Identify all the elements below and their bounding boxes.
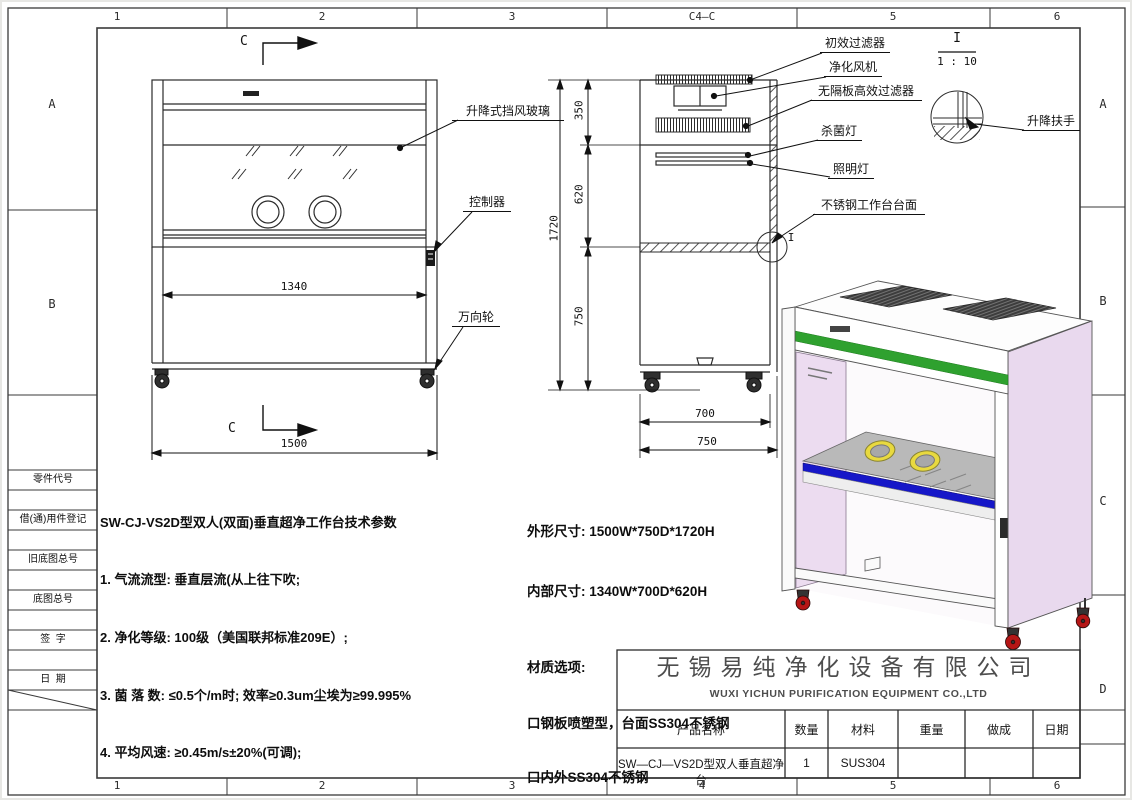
detail-marker-I: I	[784, 232, 798, 245]
record-part-code: 零件代号	[10, 474, 96, 486]
label-lifting-glass: 升降式挡风玻璃	[452, 105, 564, 121]
callout-worktop: 不锈钢工作台台面	[813, 199, 925, 215]
dim-620: 620	[574, 174, 587, 214]
dim-750-vertical: 750	[574, 296, 587, 336]
callout-prefilter: 初效过滤器	[820, 37, 890, 53]
zone-top-2: 2	[282, 11, 362, 24]
zone-top-3: 3	[472, 11, 552, 24]
record-date: 日 期	[10, 674, 96, 686]
dim-1500: 1500	[264, 438, 324, 451]
product-material: SUS304	[828, 756, 898, 770]
record-borrowed: 借(通)用件登记	[10, 514, 96, 526]
row-right-A: A	[1088, 98, 1118, 112]
record-master-no: 底图总号	[10, 594, 96, 606]
brand-logo-front	[243, 91, 259, 96]
product-name: SW—CJ—VS2D型双人垂直超净台	[617, 756, 785, 788]
zone-top-6: 6	[1017, 11, 1097, 24]
product-qty: 1	[785, 756, 828, 770]
row-right-D: D	[1088, 683, 1118, 697]
company-name-cn: 无锡易纯净化设备有限公司	[617, 655, 1080, 681]
col-header-weight: 重量	[898, 721, 965, 738]
brand-logo-3d	[830, 326, 850, 332]
outer-size: 外形尺寸: 1500W*750D*1720H	[527, 524, 817, 540]
engineering-drawing-sheet: 1 2 3 C4—C 5 6 1 2 3 4 5 6 A B A B C D 零…	[0, 0, 1132, 800]
detail-label-I: I	[938, 32, 976, 47]
row-right-C: C	[1088, 495, 1118, 509]
zone-bottom-6: 6	[1017, 780, 1097, 793]
callout-light: 照明灯	[828, 163, 874, 179]
zone-top-1: 1	[77, 11, 157, 24]
dimensions-note-block: 外形尺寸: 1500W*750D*1720H 内部尺寸: 1340W*700D*…	[527, 487, 817, 800]
dim-1720: 1720	[549, 206, 562, 250]
dim-700: 700	[680, 408, 730, 421]
dim-750-horizontal: 750	[682, 436, 732, 449]
col-header-made: 做成	[965, 721, 1033, 738]
callout-fan: 净化风机	[824, 61, 882, 77]
caster-wheels-front	[155, 369, 434, 388]
caster-wheels-side	[644, 372, 762, 392]
row-left-A: A	[37, 98, 67, 112]
label-controller: 控制器	[463, 196, 511, 212]
callout-uv-lamp: 杀菌灯	[816, 125, 862, 141]
glass-edge-hatch	[770, 84, 777, 243]
hepa-filter-band	[656, 118, 750, 132]
col-header-date: 日期	[1033, 721, 1080, 738]
row-left-B: B	[37, 298, 67, 312]
inner-size: 内部尺寸: 1340W*700D*620H	[527, 584, 817, 600]
dim-350: 350	[574, 90, 587, 130]
isometric-view	[782, 281, 1092, 650]
detail-scale: 1 : 10	[936, 56, 978, 69]
side-panel-pink	[1008, 321, 1092, 628]
label-caster: 万向轮	[452, 311, 500, 327]
section-letter-bottom: C	[228, 422, 236, 437]
section-letter-top: C	[240, 35, 248, 50]
zone-top-4-section-cc: C4—C	[662, 11, 742, 24]
zone-bottom-5: 5	[853, 780, 933, 793]
worktop-section	[640, 243, 770, 252]
record-old-master: 旧底图总号	[10, 554, 96, 566]
callout-hepa: 无隔板高效过滤器	[810, 85, 922, 101]
prefilter-band	[656, 75, 752, 84]
zone-top-5: 5	[853, 11, 933, 24]
dim-1340: 1340	[264, 281, 324, 294]
row-right-B: B	[1088, 295, 1118, 309]
col-header-qty: 数量	[785, 721, 828, 738]
col-header-product: 产品名称	[617, 721, 785, 738]
callout-lift-handle: 升降扶手	[1022, 115, 1080, 131]
col-header-material: 材料	[828, 721, 898, 738]
record-signature: 签 字	[10, 634, 96, 646]
company-name-en: WUXI YICHUN PURIFICATION EQUIPMENT CO.,L…	[617, 688, 1080, 700]
